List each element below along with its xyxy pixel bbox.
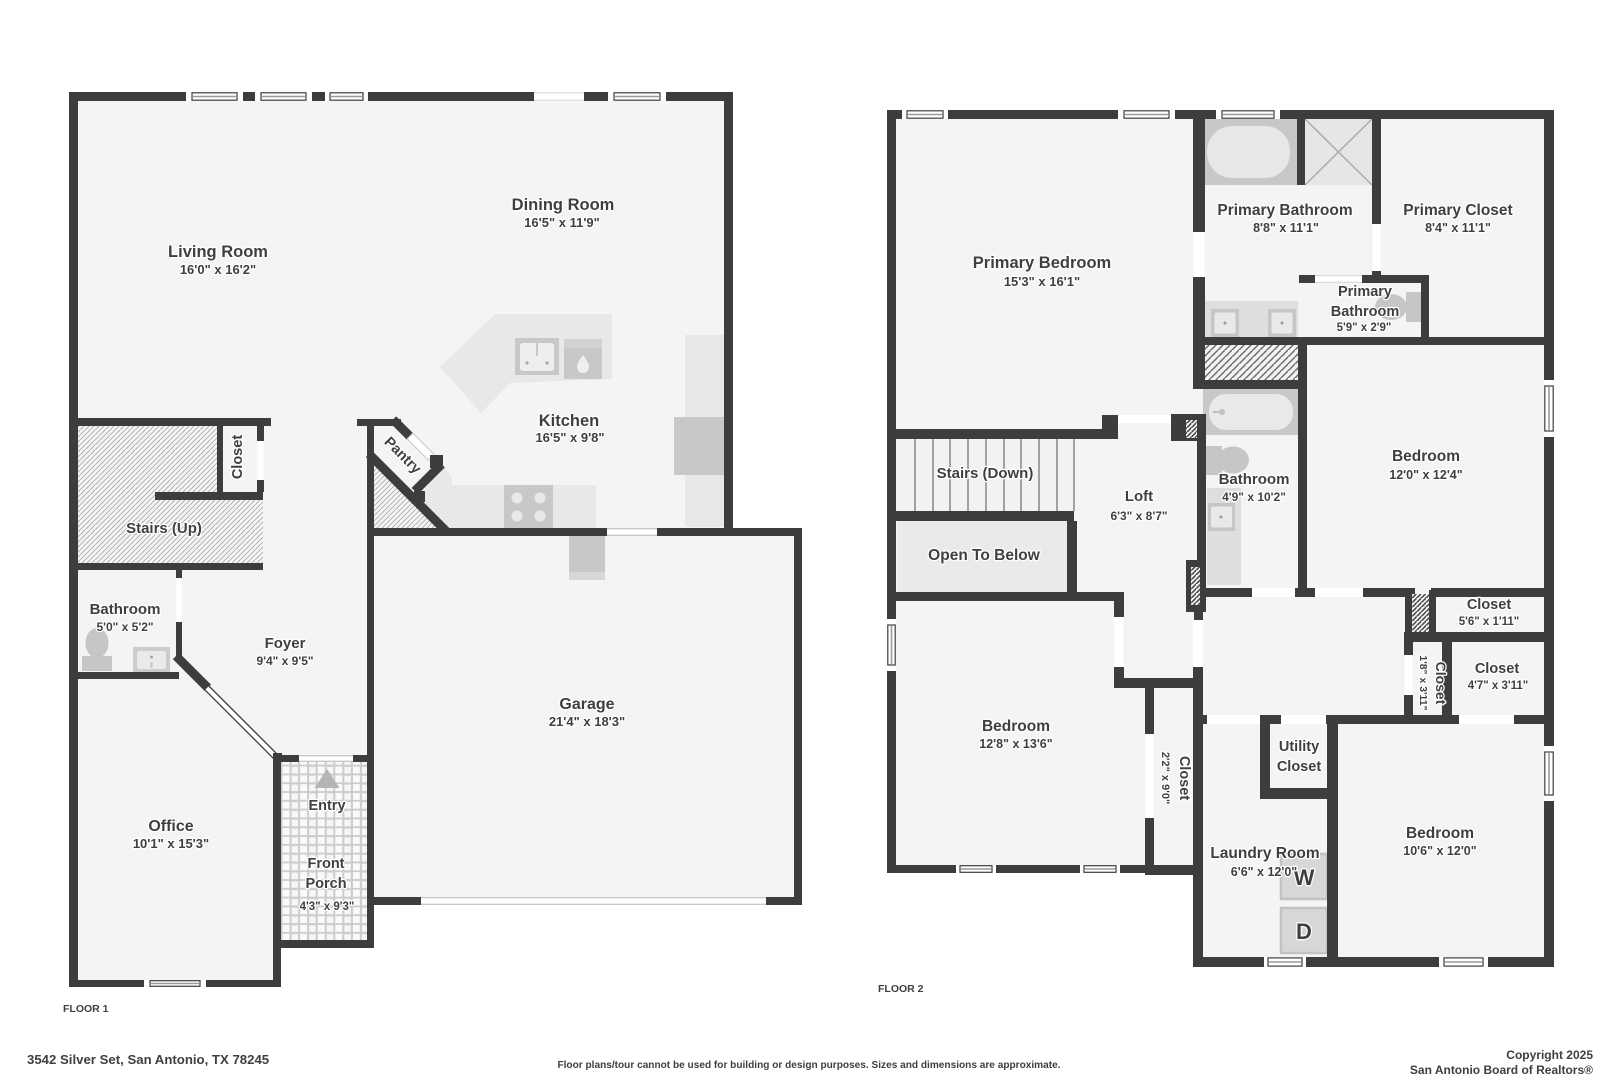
svg-text:5'6" x 1'11": 5'6" x 1'11": [1459, 616, 1520, 628]
svg-text:21'4" x 18'3": 21'4" x 18'3": [549, 714, 625, 729]
svg-text:Stairs (Down): Stairs (Down): [937, 465, 1034, 482]
svg-text:5'0" x 5'2": 5'0" x 5'2": [96, 620, 153, 634]
svg-text:FLOOR 2: FLOOR 2: [878, 983, 924, 995]
svg-text:12'0" x 12'4": 12'0" x 12'4": [1389, 468, 1462, 482]
svg-text:16'5" x 9'8": 16'5" x 9'8": [535, 430, 604, 445]
svg-text:Bedroom: Bedroom: [1406, 825, 1474, 842]
svg-text:Garage: Garage: [559, 696, 614, 713]
svg-text:Bathroom: Bathroom: [1331, 304, 1399, 320]
svg-text:Bathroom: Bathroom: [90, 601, 161, 618]
svg-text:12'8" x 13'6": 12'8" x 13'6": [979, 737, 1052, 751]
svg-text:4'7" x 3'11": 4'7" x 3'11": [1468, 680, 1529, 692]
svg-text:Bedroom: Bedroom: [1392, 448, 1460, 465]
svg-text:Dining Room: Dining Room: [512, 196, 615, 214]
svg-text:Closet: Closet: [1433, 662, 1449, 705]
svg-text:Closet: Closet: [1176, 756, 1192, 800]
svg-text:10'6" x 12'0": 10'6" x 12'0": [1403, 844, 1476, 858]
svg-text:5'9" x 2'9": 5'9" x 2'9": [1337, 322, 1392, 334]
svg-text:D: D: [1296, 919, 1312, 944]
svg-text:Front: Front: [307, 856, 344, 872]
svg-text:Bathroom: Bathroom: [1219, 471, 1290, 488]
svg-text:1'8" x 3'11": 1'8" x 3'11": [1417, 655, 1429, 710]
svg-text:4'3" x 9'3": 4'3" x 9'3": [300, 901, 355, 913]
svg-text:6'3" x 8'7": 6'3" x 8'7": [1110, 509, 1167, 523]
svg-text:Primary Bathroom: Primary Bathroom: [1217, 202, 1352, 219]
svg-text:Floor plans/tour cannot be use: Floor plans/tour cannot be used for buil…: [557, 1060, 1060, 1071]
svg-text:Kitchen: Kitchen: [539, 412, 600, 430]
svg-text:4'9" x 10'2": 4'9" x 10'2": [1222, 490, 1286, 504]
svg-text:Closet: Closet: [1277, 759, 1321, 775]
svg-text:Copyright 2025: Copyright 2025: [1506, 1048, 1593, 1062]
svg-text:Primary Bedroom: Primary Bedroom: [973, 254, 1111, 272]
svg-text:Primary Closet: Primary Closet: [1403, 202, 1512, 219]
svg-text:15'3" x 16'1": 15'3" x 16'1": [1004, 274, 1080, 289]
svg-text:8'8" x 11'1": 8'8" x 11'1": [1253, 221, 1319, 235]
svg-text:2'2" x 9'0": 2'2" x 9'0": [1159, 752, 1171, 804]
svg-text:8'4" x 11'1": 8'4" x 11'1": [1425, 221, 1491, 235]
svg-text:Porch: Porch: [305, 876, 346, 892]
svg-text:Bedroom: Bedroom: [982, 718, 1050, 735]
svg-text:Office: Office: [148, 818, 193, 835]
svg-text:Living Room: Living Room: [168, 243, 268, 261]
svg-text:Foyer: Foyer: [265, 635, 306, 652]
svg-text:16'0" x 16'2": 16'0" x 16'2": [180, 262, 256, 277]
svg-text:Primary: Primary: [1338, 284, 1392, 300]
svg-text:6'6" x 12'0": 6'6" x 12'0": [1231, 865, 1298, 879]
svg-text:Closet: Closet: [1475, 661, 1519, 677]
svg-text:Closet: Closet: [1467, 597, 1511, 613]
svg-text:Laundry Room: Laundry Room: [1210, 845, 1319, 862]
svg-text:FLOOR 1: FLOOR 1: [63, 1003, 109, 1015]
svg-text:3542 Silver Set, San Antonio,: 3542 Silver Set, San Antonio, TX 78245: [27, 1052, 269, 1067]
svg-text:Entry: Entry: [308, 798, 345, 814]
svg-text:9'4" x 9'5": 9'4" x 9'5": [256, 654, 313, 668]
svg-text:Loft: Loft: [1125, 488, 1153, 505]
svg-text:16'5" x 11'9": 16'5" x 11'9": [524, 215, 600, 230]
svg-text:Utility: Utility: [1279, 739, 1319, 755]
svg-text:Stairs (Up): Stairs (Up): [126, 520, 202, 537]
svg-text:Closet: Closet: [230, 435, 246, 479]
svg-text:10'1" x 15'3": 10'1" x 15'3": [133, 836, 209, 851]
svg-text:San Antonio Board of Realtors®: San Antonio Board of Realtors®: [1410, 1063, 1593, 1077]
svg-text:Open To Below: Open To Below: [928, 547, 1041, 564]
